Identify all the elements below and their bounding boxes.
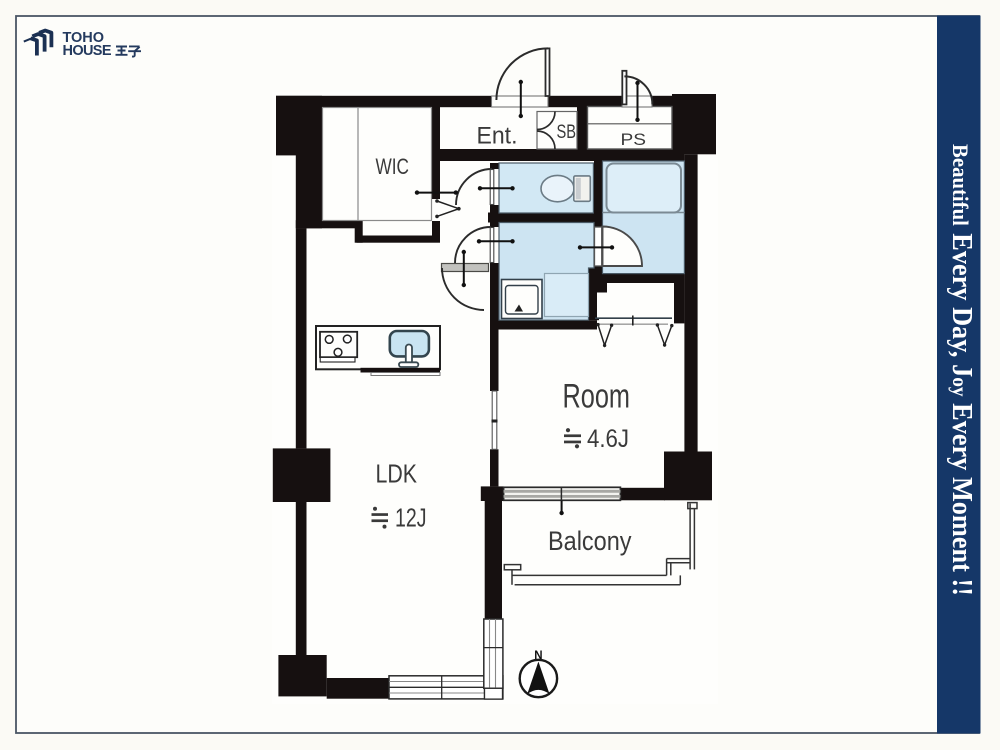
svg-text:Balcony: Balcony [548, 526, 632, 556]
svg-text:12J: 12J [395, 503, 427, 533]
svg-text:BeautifulEvery Day, Joy Every: BeautifulEvery Day, Joy Every Moment !! [946, 144, 977, 596]
svg-text:Ent.: Ent. [477, 123, 518, 150]
svg-text:SB: SB [557, 122, 577, 143]
svg-text:Room: Room [563, 378, 631, 416]
svg-text:HOUSE: HOUSE [63, 43, 112, 59]
svg-text:4.6J: 4.6J [587, 425, 629, 453]
svg-text:WIC: WIC [376, 154, 410, 179]
svg-text:PS: PS [621, 130, 647, 149]
svg-text:LDK: LDK [376, 459, 418, 489]
svg-text:N: N [534, 650, 542, 662]
